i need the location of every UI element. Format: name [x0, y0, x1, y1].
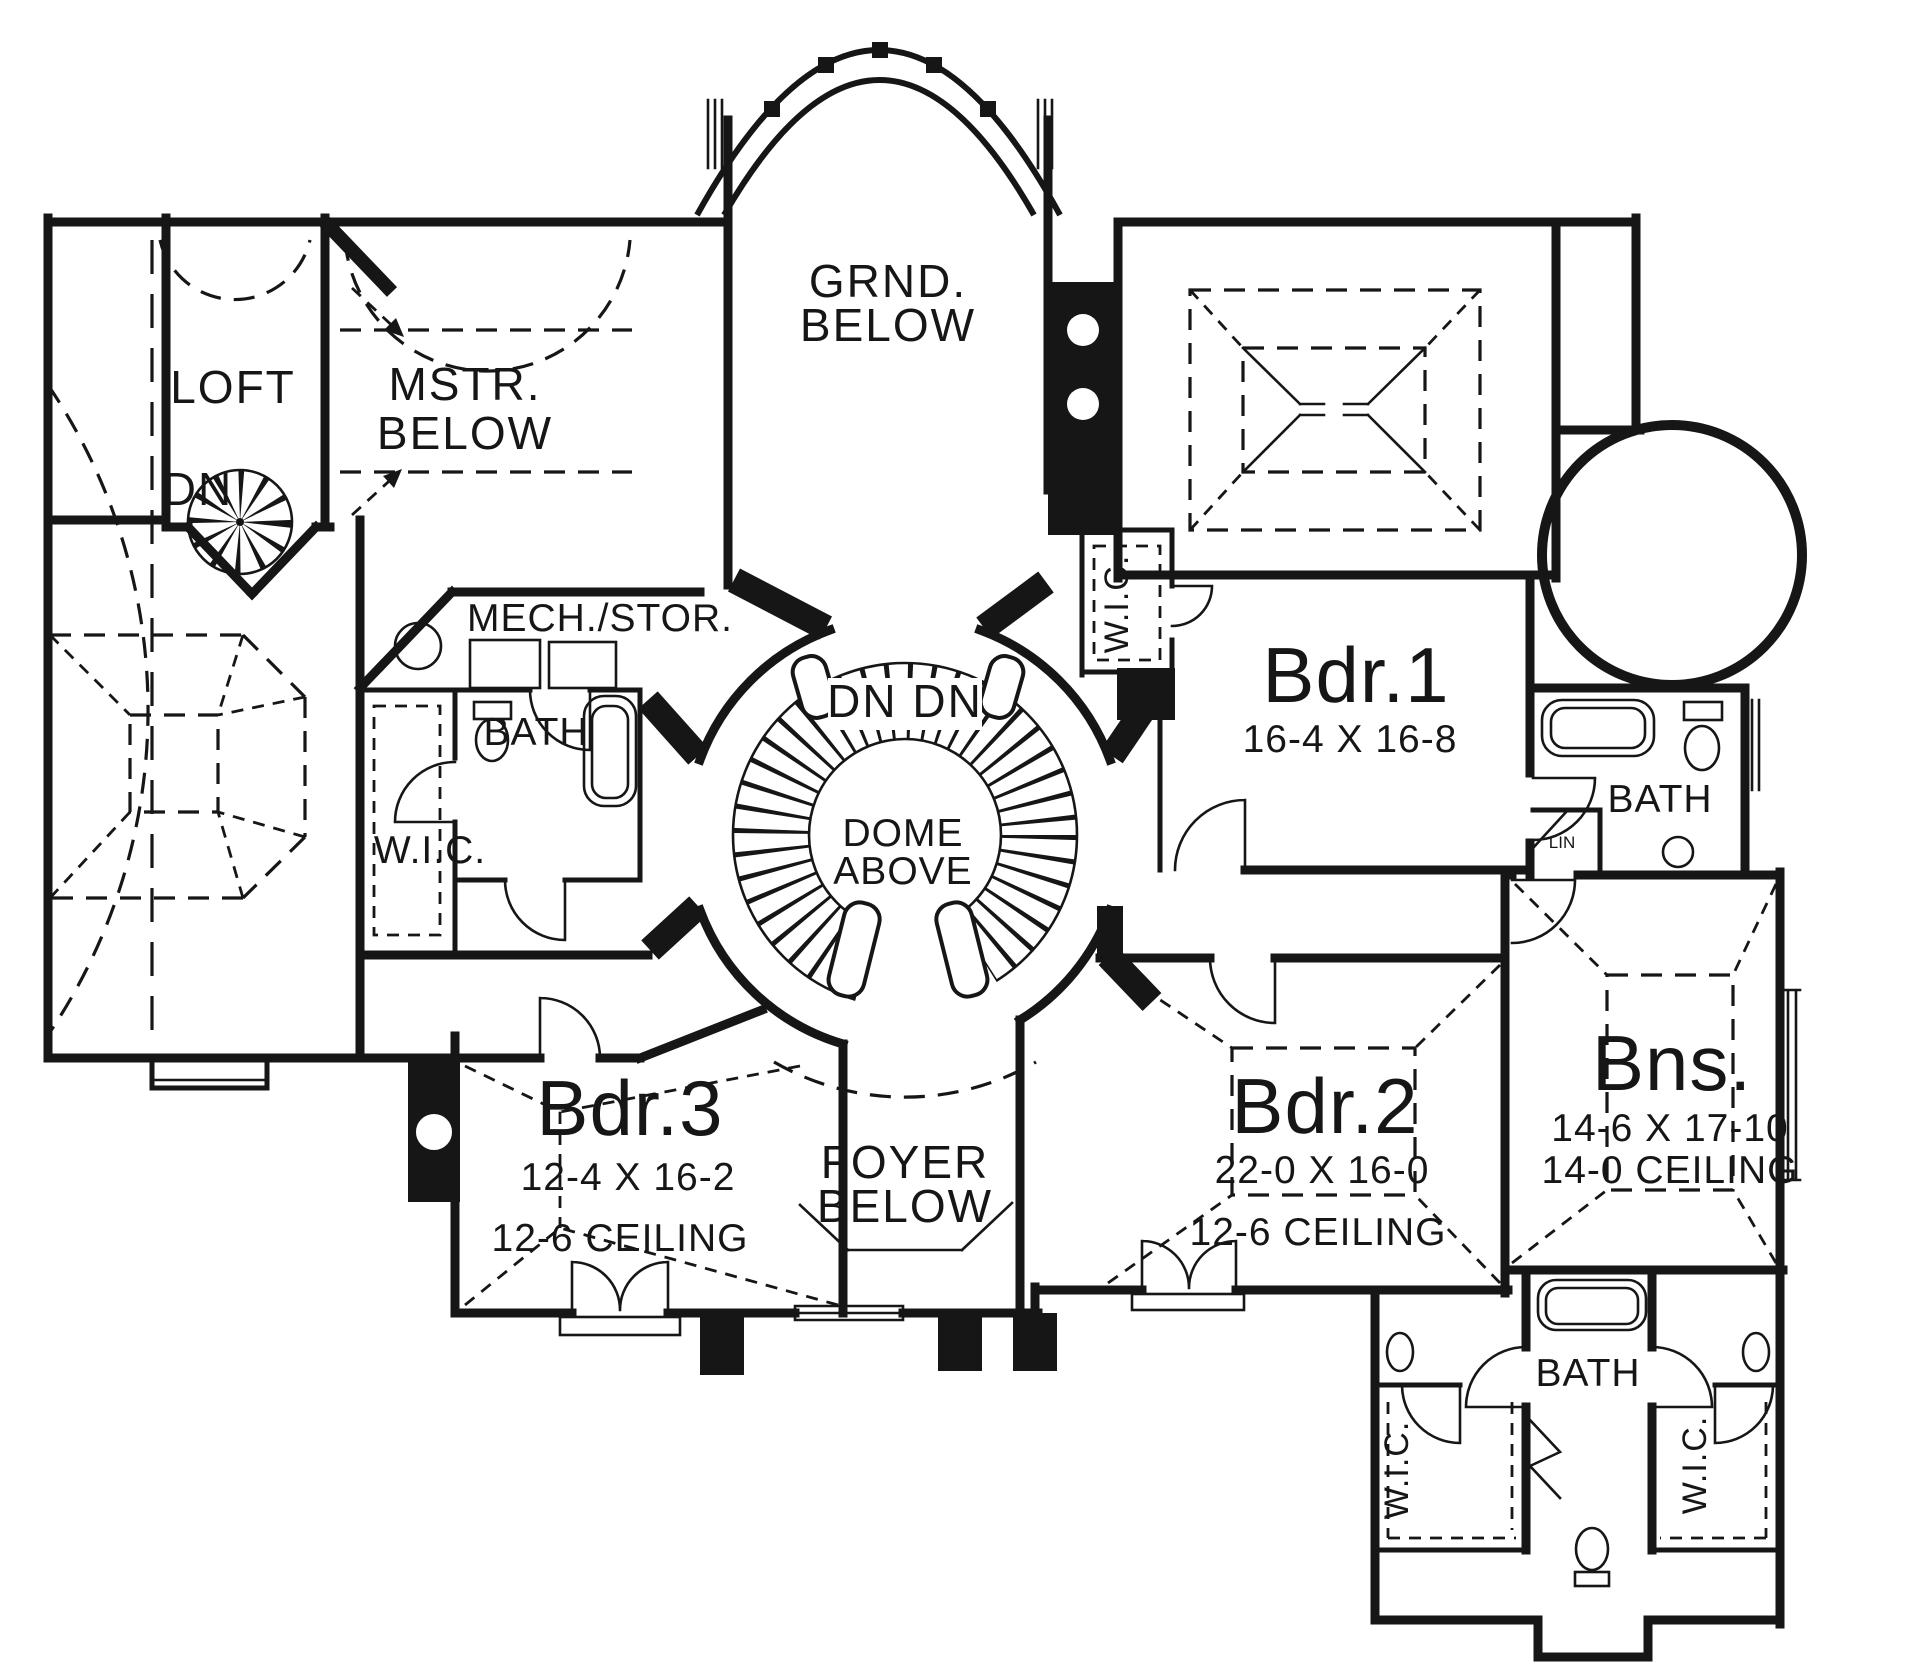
room-size-bedroom2: 22-0 X 16-0	[1215, 1149, 1430, 1192]
rotunda-wall	[1020, 910, 1110, 1020]
room-label-master-line2: BELOW	[377, 407, 553, 459]
appliance-icon	[549, 642, 616, 688]
tr-tray-inner	[1243, 348, 1425, 472]
mullion	[872, 42, 888, 58]
bifold-door	[1530, 1420, 1560, 1498]
tr-tray-outer	[1190, 290, 1480, 530]
sink-icon	[1743, 1333, 1769, 1371]
dome-above-line1: DOME	[843, 812, 964, 855]
spiral-stair-dn-label: DN	[163, 463, 233, 515]
window	[1752, 700, 1759, 790]
grand-bay-window	[697, 42, 1060, 215]
bathtub-inner	[1546, 1288, 1638, 1324]
door-swing	[395, 762, 455, 822]
room-ceiling-bedroom2: 12-6 CEILING	[1190, 1211, 1447, 1254]
door-swing	[1210, 958, 1275, 1023]
tr-tray-diagonals	[1190, 290, 1480, 530]
room-label-grand-line2: BELOW	[800, 299, 976, 351]
loft-ceiling-arc	[160, 240, 310, 300]
stair-dn-dn-label: DN DN	[827, 675, 983, 727]
toilet-icon	[1685, 726, 1719, 770]
room-label-bath-right: BATH	[1607, 778, 1712, 821]
toilet-base	[1575, 1572, 1609, 1586]
angled-wall	[325, 222, 392, 292]
toilet-icon	[1576, 1528, 1608, 1570]
room-ceiling-bedroom3: 12-6 CEILING	[492, 1217, 749, 1260]
left-tray-diagonals	[50, 635, 305, 898]
turret-room	[1542, 425, 1802, 685]
door-swing	[1466, 1347, 1526, 1407]
mullion	[980, 101, 996, 117]
room-label-bedroom3: Bdr.3	[536, 1064, 723, 1152]
bathtub-inner	[1551, 708, 1645, 748]
door-sill	[1132, 1294, 1244, 1310]
room-label-wic-left: W.I.C.	[374, 829, 486, 872]
door-sill	[560, 1317, 680, 1335]
door-swing	[540, 998, 600, 1058]
pilaster	[700, 1313, 744, 1375]
door-swing	[1172, 586, 1212, 626]
foyer-ceiling-arc	[774, 1062, 1036, 1097]
room-size-bonus: 14-6 X 17-10	[1551, 1107, 1789, 1150]
mullion	[818, 57, 834, 73]
bay-outer-arc	[697, 50, 1060, 215]
dome-above-line2: ABOVE	[833, 850, 972, 893]
mullion	[764, 101, 780, 117]
wall-poche	[1048, 435, 1118, 535]
spiral-center	[236, 518, 244, 526]
bathtub-inner	[592, 706, 628, 798]
toilet-tank	[1684, 702, 1722, 720]
appliance-icon	[470, 640, 540, 688]
master-ceiling-arc	[345, 240, 630, 371]
french-door	[572, 1262, 668, 1313]
room-label-master-line1: MSTR.	[388, 358, 541, 410]
column-icon	[414, 1112, 454, 1152]
mullion	[926, 57, 942, 73]
sink-icon	[1663, 837, 1693, 867]
room-label-linen: LIN	[1549, 833, 1575, 852]
window	[795, 1306, 903, 1320]
column-icon	[1067, 314, 1099, 346]
left-tray-outline	[50, 635, 305, 898]
column-icon	[1067, 388, 1099, 420]
room-label-wic-bottom-left: W.I.C.	[1378, 1421, 1416, 1520]
wall-poche	[1117, 668, 1175, 720]
tr-tray-ridge	[1243, 348, 1425, 472]
room-label-bath-left: BATH	[483, 711, 588, 754]
pilaster	[938, 1313, 982, 1371]
room-label-wic-bottom-right: W.I.C.	[1676, 1416, 1714, 1515]
bay-inner-arc	[724, 80, 1034, 215]
room-label-wic-center: W.I.C.	[1098, 555, 1136, 654]
wic-partition-walls	[1375, 1385, 1780, 1550]
left-tray-inner	[130, 715, 218, 812]
left-room-ceiling-arc	[48, 385, 148, 1035]
room-label-loft: LOFT	[170, 361, 296, 413]
pilaster	[1013, 1313, 1057, 1371]
room-size-bedroom3: 12-4 X 16-2	[521, 1156, 736, 1199]
sink-icon	[1387, 1333, 1413, 1371]
floor-plan-page: LOFT DN MSTR. BELOW GRND. BELOW MECH./ST…	[0, 0, 1920, 1662]
floor-plan-drawing: LOFT DN MSTR. BELOW GRND. BELOW MECH./ST…	[0, 0, 1920, 1662]
room-label-foyer-line2: BELOW	[817, 1180, 993, 1232]
room-label-mech-storage: MECH./STOR.	[467, 597, 733, 640]
door-swing	[1715, 1385, 1773, 1443]
room-ceiling-bonus: 14-0 CEILING	[1542, 1149, 1799, 1192]
bdr3-top-walls	[457, 1010, 762, 1058]
door-swing	[1652, 1347, 1712, 1407]
wic-left-shelf-dashes	[374, 706, 440, 935]
room-label-bonus: Bns.	[1592, 1019, 1752, 1107]
room-size-bedroom1: 16-4 X 16-8	[1243, 718, 1458, 761]
wall	[455, 1267, 1783, 1316]
room-label-bath-bottom: BATH	[1535, 1352, 1640, 1395]
room-label-bedroom1: Bdr.1	[1262, 631, 1449, 719]
grand-room-walls	[728, 120, 1048, 585]
door-swing	[505, 880, 565, 940]
room-label-bedroom2: Bdr.2	[1231, 1062, 1418, 1150]
door-swing	[1175, 800, 1245, 870]
